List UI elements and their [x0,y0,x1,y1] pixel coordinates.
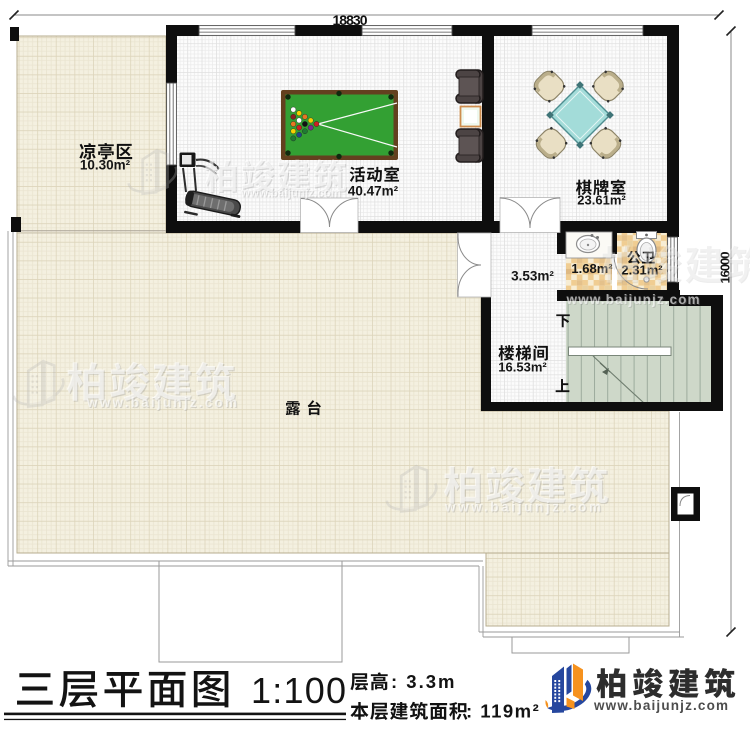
svg-text:www.baijunjz.com: www.baijunjz.com [593,698,728,713]
svg-text:www.baijunjz.com: www.baijunjz.com [240,188,343,200]
svg-text:www.baijunjz.com: www.baijunjz.com [566,292,702,307]
svg-text:: 3.3m: : 3.3m [391,671,456,692]
svg-text:: 119m²: : 119m² [466,701,540,722]
svg-text:40.47m²: 40.47m² [348,183,399,198]
svg-text:23.61m²: 23.61m² [577,193,626,208]
svg-text:3.53m²: 3.53m² [511,268,554,283]
svg-text:www.baijunjz.com: www.baijunjz.com [86,395,239,410]
svg-text:10.30m²: 10.30m² [80,157,131,172]
svg-text:www.baijunjz.com: www.baijunjz.com [444,500,603,515]
svg-text:1:100: 1:100 [251,670,346,711]
svg-text:18830: 18830 [333,12,368,28]
svg-text:16.53m²: 16.53m² [498,360,547,375]
